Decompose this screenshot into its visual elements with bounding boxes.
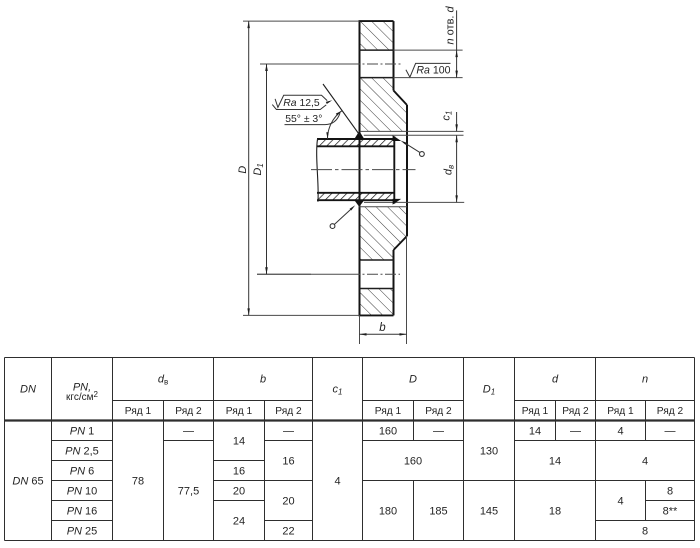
svg-text:4: 4 [642, 456, 648, 468]
svg-text:b: b [260, 374, 266, 386]
svg-text:180: 180 [379, 506, 397, 518]
svg-text:Ряд 2: Ряд 2 [425, 406, 452, 417]
svg-text:b: b [379, 322, 386, 334]
svg-text:PN 1: PN 1 [70, 426, 94, 438]
svg-text:Ряд 2: Ряд 2 [562, 406, 589, 417]
svg-text:4: 4 [617, 496, 623, 508]
svg-text:55° ± 3°: 55° ± 3° [285, 114, 322, 125]
svg-text:78: 78 [132, 476, 144, 488]
svg-text:4: 4 [617, 426, 623, 438]
svg-text:8: 8 [642, 526, 648, 538]
svg-text:Ra 100: Ra 100 [416, 64, 450, 76]
svg-text:Ra 12,5: Ra 12,5 [283, 98, 320, 109]
svg-text:20: 20 [233, 486, 245, 498]
svg-text:PN 25: PN 25 [67, 526, 98, 538]
svg-text:Ряд 2: Ряд 2 [657, 406, 684, 417]
svg-text:—: — [183, 426, 194, 438]
svg-text:4: 4 [334, 476, 340, 488]
svg-text:D: D [237, 166, 249, 174]
svg-text:24: 24 [233, 516, 245, 528]
svg-text:185: 185 [429, 506, 447, 518]
svg-text:8**: 8** [663, 506, 678, 518]
svg-text:160: 160 [379, 426, 397, 438]
svg-text:D: D [409, 374, 417, 386]
svg-text:PN 6: PN 6 [70, 466, 94, 478]
svg-text:—: — [433, 426, 444, 438]
svg-text:Ряд 2: Ряд 2 [175, 406, 202, 417]
svg-text:n отв. d: n отв. d [444, 5, 456, 44]
svg-text:Ряд 1: Ряд 1 [607, 406, 634, 417]
svg-text:Ряд 1: Ряд 1 [375, 406, 402, 417]
svg-text:Ряд 1: Ряд 1 [125, 406, 152, 417]
svg-text:Ряд 1: Ряд 1 [522, 406, 549, 417]
svg-text:20: 20 [282, 496, 294, 508]
svg-text:14: 14 [529, 426, 541, 438]
svg-text:77,5: 77,5 [178, 486, 199, 498]
svg-text:14: 14 [549, 456, 561, 468]
svg-text:DN 65: DN 65 [12, 476, 43, 488]
svg-text:n: n [642, 374, 648, 386]
svg-text:22: 22 [282, 526, 294, 538]
svg-text:—: — [570, 426, 581, 438]
svg-text:PN 16: PN 16 [67, 506, 98, 518]
svg-text:PN 10: PN 10 [67, 486, 98, 498]
svg-text:18: 18 [549, 506, 561, 518]
svg-text:Ряд 1: Ряд 1 [226, 406, 253, 417]
svg-text:PN 2,5: PN 2,5 [65, 446, 99, 458]
svg-text:14: 14 [233, 436, 245, 448]
svg-text:16: 16 [282, 456, 294, 468]
svg-text:DN: DN [20, 384, 36, 396]
svg-text:d: d [552, 374, 559, 386]
svg-text:160: 160 [404, 456, 422, 468]
svg-text:Ряд 2: Ряд 2 [275, 406, 302, 417]
svg-text:145: 145 [480, 506, 498, 518]
svg-text:130: 130 [480, 446, 498, 458]
svg-text:16: 16 [233, 466, 245, 478]
svg-text:—: — [665, 426, 676, 438]
svg-text:—: — [283, 426, 294, 438]
svg-text:8: 8 [667, 486, 673, 498]
